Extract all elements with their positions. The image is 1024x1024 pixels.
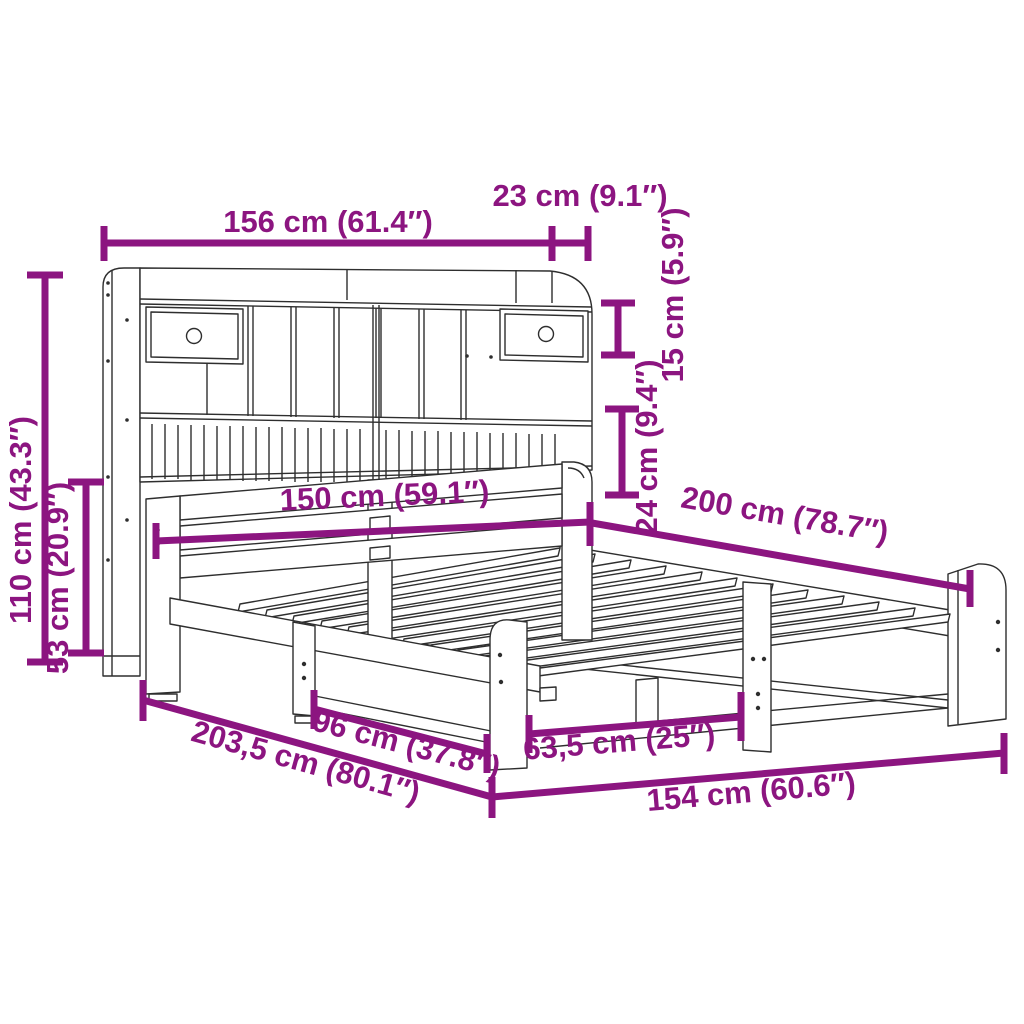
headboard-leg-left xyxy=(146,496,180,694)
footboard-center-leg xyxy=(743,582,771,752)
dimension-label: 15 cm (5.9″) xyxy=(655,207,690,382)
dimension-label: 156 cm (61.4″) xyxy=(223,204,433,239)
bookcase-side-panel xyxy=(103,268,140,676)
footboard-near-post xyxy=(490,620,527,770)
bed-dimension-drawing: 156 cm (61.4″) 23 cm (9.1″) 15 cm (5.9″)… xyxy=(0,0,1024,1024)
dimension-mid-shelf-height: 24 cm (9.4″) xyxy=(605,359,664,534)
dimension-center-support-spacing: 63,5 cm (25″) xyxy=(522,692,741,767)
dimension-label: 154 cm (60.6″) xyxy=(645,765,857,818)
dimension-headboard-top-depth: 23 cm (9.1″) xyxy=(492,178,667,213)
dimension-label: 23 cm (9.1″) xyxy=(492,178,667,213)
drawer-right xyxy=(500,309,588,362)
dimension-top-shelf-height: 15 cm (5.9″) xyxy=(601,207,690,382)
dimension-label: 53 cm (20.9″) xyxy=(40,482,75,674)
dimension-label: 24 cm (9.4″) xyxy=(629,359,664,534)
dimension-lower-height: 53 cm (20.9″) xyxy=(40,482,104,674)
drawer-left xyxy=(146,307,243,364)
dimension-label: 110 cm (43.3″) xyxy=(3,416,38,624)
dimension-label: 200 cm (78.7″) xyxy=(679,480,891,550)
dimension-diagram: 156 cm (61.4″) 23 cm (9.1″) 15 cm (5.9″)… xyxy=(0,0,1024,1024)
dimension-label: 63,5 cm (25″) xyxy=(522,716,717,766)
